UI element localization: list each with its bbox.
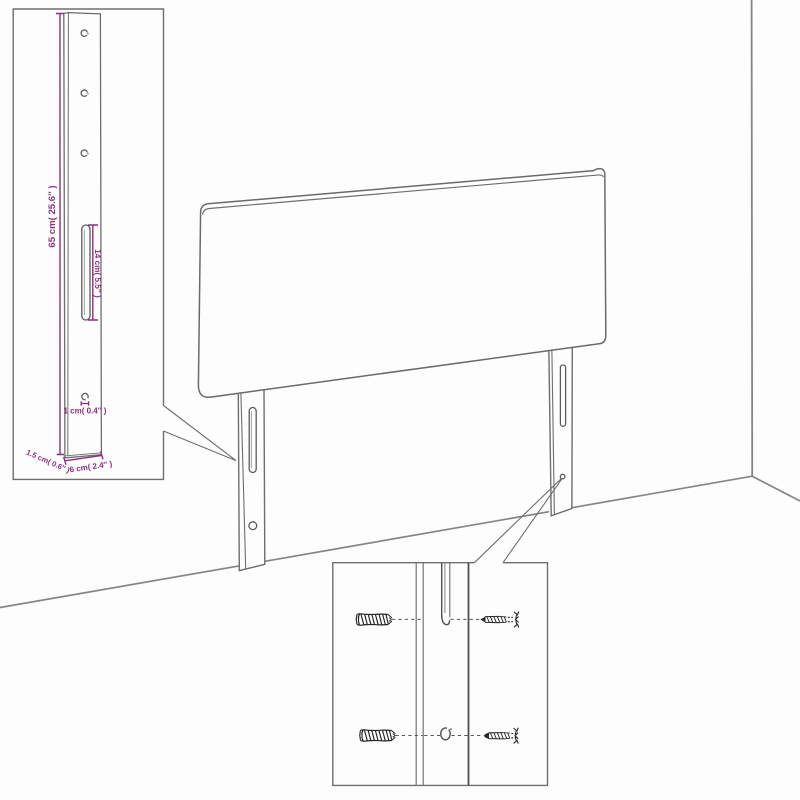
svg-text:65 cm( 25.6″ ): 65 cm( 25.6″ ) (47, 185, 58, 247)
svg-text:6 cm( 2.4″ ): 6 cm( 2.4″ ) (69, 459, 113, 474)
svg-text:1 cm( 0.4″ ): 1 cm( 0.4″ ) (64, 407, 107, 416)
svg-text:14 cm( 5.5″ ): 14 cm( 5.5″ ) (93, 249, 102, 298)
